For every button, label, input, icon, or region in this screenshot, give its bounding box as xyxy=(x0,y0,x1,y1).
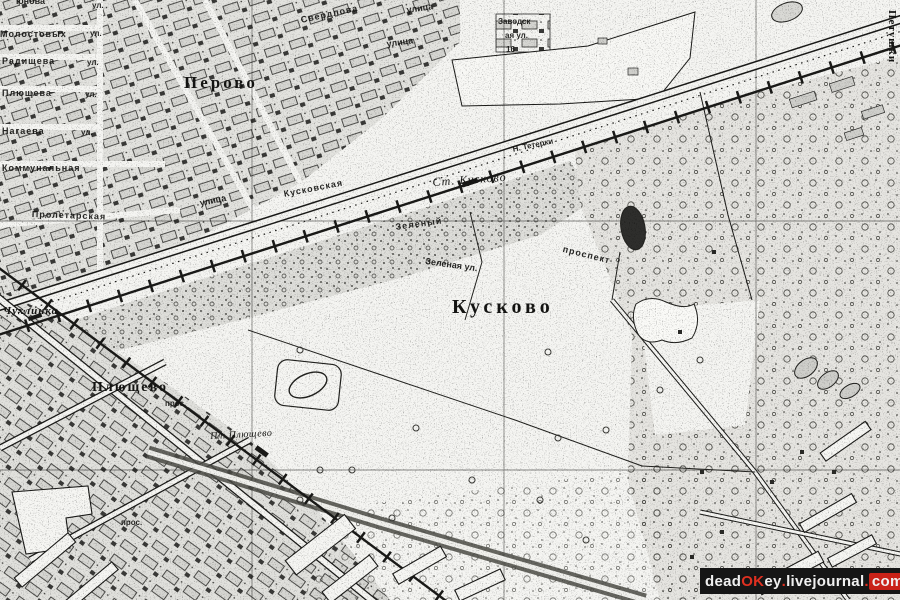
map-label-ул.: ул. xyxy=(87,59,99,67)
map-label-16: 16 xyxy=(506,46,515,54)
map-label-ул.: ул. xyxy=(81,129,93,137)
map-label-ул.: ул. xyxy=(85,91,97,99)
watermark-part: ey xyxy=(764,574,781,589)
map-label-Заводск: Заводск xyxy=(498,18,530,26)
map-label-Коммунальная: Коммунальная xyxy=(2,164,80,173)
map-label-Плющева: Плющева xyxy=(2,89,52,98)
watermark: deadOKey.livejournal.com xyxy=(700,568,900,594)
map-label-Зеленая-ул.: Зеленая ул. xyxy=(425,257,478,273)
map-label-улица: улица xyxy=(199,194,227,208)
map-label-Пл.-Плющево: Пл. Плющево xyxy=(210,429,273,442)
map-label-ул.: ул. xyxy=(90,30,102,38)
map-label-ая-ул.: ая ул. xyxy=(505,32,528,40)
map-label-ул.: ул. xyxy=(92,2,104,10)
map-canvas: ПеровоКусковоПлющевоЧухлинкаПетушкиСт. К… xyxy=(0,0,900,600)
map-label-Пролетарская: Пролетарская xyxy=(32,210,107,222)
map-label-Радищева: Радищева xyxy=(2,57,55,66)
map-label-Н.-Тетерки: Н. Тетерки xyxy=(512,137,554,153)
map-label-Чухлинка: Чухлинка xyxy=(3,306,58,317)
map-label-layer: ПеровоКусковоПлющевоЧухлинкаПетушкиСт. К… xyxy=(0,0,900,600)
watermark-part: OK xyxy=(741,574,764,589)
map-label-проспект: проспект xyxy=(562,245,611,266)
map-label-Перово: Перово xyxy=(184,74,258,91)
map-label-Нагаева: Нагаева xyxy=(2,127,45,136)
map-label-Кусковская: Кусковская xyxy=(283,179,344,199)
map-label-улица: улица xyxy=(386,36,414,49)
map-label-прос.: прос. xyxy=(121,519,142,527)
map-label-улица: улица xyxy=(406,2,434,15)
map-label-прос.: прос. xyxy=(165,400,186,408)
map-label-Ст.-Кусково: Ст. Кусково xyxy=(432,171,507,188)
map-label-Свердлова: Свердлова xyxy=(300,4,359,25)
watermark-text: deadOKey.livejournal.com xyxy=(705,573,900,590)
watermark-part: com xyxy=(869,573,900,590)
watermark-part: livejournal xyxy=(786,574,864,589)
map-label-Петушки: Петушки xyxy=(886,10,897,63)
map-label-Кусково: Кусково xyxy=(452,297,554,317)
map-label-Зелёный: Зелёный xyxy=(395,216,443,231)
map-label-Плющево: Плющево xyxy=(92,381,168,395)
watermark-part: dead xyxy=(705,574,741,589)
map-label-юнова: юнова xyxy=(16,0,45,6)
map-label-Молостовых: Молостовых xyxy=(0,30,67,39)
